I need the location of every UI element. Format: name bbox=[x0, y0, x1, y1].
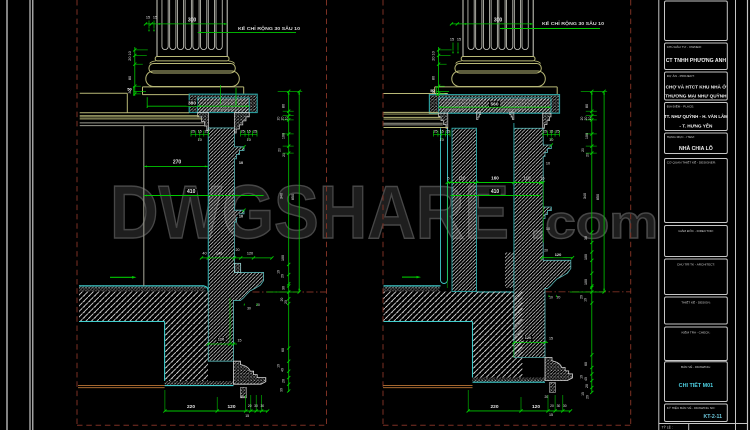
svg-text:15: 15 bbox=[146, 16, 150, 20]
svg-text:10: 10 bbox=[549, 296, 553, 300]
svg-text:20: 20 bbox=[248, 404, 252, 408]
svg-text:- T. HƯNG YÊN: - T. HƯNG YÊN bbox=[679, 121, 713, 128]
svg-text:30: 30 bbox=[584, 236, 588, 240]
svg-text:10: 10 bbox=[588, 117, 592, 121]
svg-text:20: 20 bbox=[282, 153, 286, 157]
svg-text:20: 20 bbox=[550, 404, 554, 408]
svg-text:80: 80 bbox=[432, 76, 436, 80]
svg-text:25: 25 bbox=[434, 129, 438, 133]
svg-text:10: 10 bbox=[285, 117, 289, 121]
svg-text:20: 20 bbox=[557, 296, 561, 300]
svg-text:15: 15 bbox=[245, 414, 249, 418]
svg-text:10: 10 bbox=[239, 161, 243, 165]
svg-text:CT TNHH PHƯƠNG ANH: CT TNHH PHƯƠNG ANH bbox=[666, 58, 727, 64]
svg-text:410: 410 bbox=[187, 189, 196, 195]
svg-text:100: 100 bbox=[282, 133, 286, 139]
svg-text:15: 15 bbox=[457, 38, 461, 42]
svg-text:10: 10 bbox=[239, 215, 243, 219]
svg-text:20 10: 20 10 bbox=[128, 51, 132, 61]
svg-text:220: 220 bbox=[490, 404, 498, 410]
svg-text:20: 20 bbox=[278, 148, 282, 152]
svg-text:40: 40 bbox=[584, 377, 588, 381]
svg-text:50: 50 bbox=[127, 87, 132, 92]
svg-text:20 10: 20 10 bbox=[432, 51, 436, 61]
svg-text:20: 20 bbox=[236, 248, 240, 252]
svg-text:15: 15 bbox=[238, 339, 242, 343]
svg-text:15: 15 bbox=[549, 413, 553, 417]
svg-text:100: 100 bbox=[584, 279, 588, 285]
svg-text:15: 15 bbox=[541, 176, 545, 180]
svg-text:10: 10 bbox=[584, 298, 588, 302]
svg-text:25: 25 bbox=[253, 129, 257, 133]
svg-text:30: 30 bbox=[282, 286, 286, 290]
svg-text:CHỦ ĐẦU TƯ - OWNER:: CHỦ ĐẦU TƯ - OWNER: bbox=[667, 44, 702, 49]
svg-text:380: 380 bbox=[188, 101, 196, 107]
svg-text:25: 25 bbox=[543, 129, 547, 133]
svg-text:KIỂM TRA - CHECK:: KIỂM TRA - CHECK: bbox=[681, 329, 710, 334]
svg-text:TT. NHƯ QUỲNH - H. VĂN LÂM: TT. NHƯ QUỲNH - H. VĂN LÂM bbox=[664, 114, 728, 119]
svg-text:110: 110 bbox=[459, 175, 467, 180]
svg-text:30: 30 bbox=[557, 404, 561, 408]
svg-text:25: 25 bbox=[241, 129, 245, 133]
svg-text:340: 340 bbox=[583, 193, 587, 199]
svg-text:CHI TIẾT M01: CHI TIẾT M01 bbox=[679, 382, 713, 389]
svg-text:25: 25 bbox=[556, 129, 560, 133]
svg-text:80: 80 bbox=[282, 104, 286, 108]
svg-text:10: 10 bbox=[580, 375, 584, 379]
svg-text:DỰ ÁN - PROJECT:: DỰ ÁN - PROJECT: bbox=[667, 74, 695, 78]
svg-text:20: 20 bbox=[581, 148, 585, 152]
svg-text:20: 20 bbox=[241, 395, 245, 399]
svg-text:15: 15 bbox=[440, 129, 444, 133]
svg-text:100: 100 bbox=[584, 254, 588, 260]
svg-text:80: 80 bbox=[585, 104, 589, 108]
svg-text:30: 30 bbox=[254, 404, 258, 408]
svg-text:20: 20 bbox=[585, 384, 589, 388]
svg-text:15: 15 bbox=[153, 16, 157, 20]
svg-text:120: 120 bbox=[218, 337, 225, 342]
svg-text:KẾ CHỈ RỘNG 30 SÂU 10: KẾ CHỈ RỘNG 30 SÂU 10 bbox=[238, 24, 301, 31]
svg-text:30: 30 bbox=[280, 388, 284, 392]
svg-text:30: 30 bbox=[247, 307, 251, 311]
svg-text:100: 100 bbox=[281, 255, 285, 261]
svg-text:10: 10 bbox=[277, 270, 281, 274]
svg-text:HẠNG MỤC - ITEM:: HẠNG MỤC - ITEM: bbox=[667, 135, 695, 139]
svg-text:10: 10 bbox=[546, 162, 550, 166]
svg-text:20: 20 bbox=[281, 274, 285, 278]
svg-text:ĐỊA ĐIỂM - PLACE:: ĐỊA ĐIỂM - PLACE: bbox=[667, 104, 694, 109]
svg-text:220: 220 bbox=[187, 404, 195, 410]
svg-text:25: 25 bbox=[191, 129, 195, 133]
svg-text:300: 300 bbox=[494, 18, 503, 24]
svg-text:300: 300 bbox=[188, 18, 197, 24]
svg-text:25: 25 bbox=[446, 129, 450, 133]
svg-text:410: 410 bbox=[491, 189, 500, 195]
svg-text:20: 20 bbox=[544, 395, 548, 399]
svg-text:KT-2-11: KT-2-11 bbox=[704, 414, 723, 420]
svg-text:850: 850 bbox=[596, 194, 600, 200]
svg-text:40: 40 bbox=[202, 252, 206, 256]
svg-text:15: 15 bbox=[450, 38, 454, 42]
svg-text:15: 15 bbox=[549, 337, 553, 341]
svg-text:60: 60 bbox=[281, 348, 285, 352]
svg-text:15: 15 bbox=[198, 129, 202, 133]
svg-text:25: 25 bbox=[205, 129, 209, 133]
svg-text:15: 15 bbox=[549, 129, 553, 133]
svg-text:120: 120 bbox=[247, 252, 253, 256]
svg-text:100: 100 bbox=[585, 133, 589, 139]
svg-text:120: 120 bbox=[525, 335, 532, 340]
svg-text:KẾ CHỈ RỘNG 30 SÂU 10: KẾ CHỈ RỘNG 30 SÂU 10 bbox=[542, 19, 605, 26]
svg-text:40: 40 bbox=[281, 368, 285, 372]
svg-text:5: 5 bbox=[448, 176, 450, 180]
svg-text:20: 20 bbox=[282, 379, 286, 383]
svg-text:GIÁM ĐỐC - DIRECTOR:: GIÁM ĐỐC - DIRECTOR: bbox=[678, 228, 713, 233]
svg-text:10: 10 bbox=[546, 227, 550, 231]
svg-text:CHỦ TRÌ TK - ARCHITECT:: CHỦ TRÌ TK - ARCHITECT: bbox=[677, 261, 715, 266]
svg-text:THIẾT KẾ - DESIGN:: THIẾT KẾ - DESIGN: bbox=[681, 299, 710, 304]
svg-text:20: 20 bbox=[284, 300, 288, 304]
svg-text:10: 10 bbox=[277, 364, 281, 368]
svg-text:340: 340 bbox=[280, 193, 284, 199]
svg-text:120: 120 bbox=[555, 252, 562, 257]
svg-text:50: 50 bbox=[430, 88, 435, 93]
svg-text:30: 30 bbox=[260, 404, 264, 408]
svg-text:120: 120 bbox=[532, 404, 540, 410]
svg-text:20: 20 bbox=[585, 153, 589, 157]
svg-text:110: 110 bbox=[524, 175, 532, 180]
svg-text:15: 15 bbox=[247, 129, 251, 133]
svg-text:270: 270 bbox=[173, 159, 182, 165]
svg-text:120: 120 bbox=[227, 404, 235, 410]
svg-text:160: 160 bbox=[491, 175, 499, 180]
svg-text:15: 15 bbox=[581, 392, 585, 396]
svg-text:80: 80 bbox=[128, 76, 132, 80]
svg-text:560: 560 bbox=[490, 101, 498, 107]
svg-text:.com: .com bbox=[530, 196, 658, 248]
svg-text:850: 850 bbox=[291, 194, 295, 200]
svg-text:THƯƠNG MẠI NHƯ QUỲNH: THƯƠNG MẠI NHƯ QUỲNH bbox=[665, 92, 727, 98]
svg-text:20: 20 bbox=[586, 395, 590, 399]
svg-text:CƠ QUAN THIẾT KẾ - DESIGNER:: CƠ QUAN THIẾT KẾ - DESIGNER: bbox=[667, 160, 716, 165]
svg-text:20: 20 bbox=[544, 248, 548, 252]
svg-text:NHÀ CHIA LÔ: NHÀ CHIA LÔ bbox=[679, 144, 713, 152]
svg-text:140: 140 bbox=[216, 252, 222, 256]
svg-text:30: 30 bbox=[563, 404, 567, 408]
svg-text:BẢN VẼ - DRAWING:: BẢN VẼ - DRAWING: bbox=[681, 364, 711, 369]
svg-text:CHỢ VÀ HTCT KHU NHÀ Ở: CHỢ VÀ HTCT KHU NHÀ Ở bbox=[666, 83, 727, 89]
svg-text:TỶ LỆ :: TỶ LỆ : bbox=[662, 424, 673, 429]
svg-text:60: 60 bbox=[584, 362, 588, 366]
svg-text:KÝ HIỆU BẢN VẼ - DRAWING NO:: KÝ HIỆU BẢN VẼ - DRAWING NO: bbox=[667, 405, 716, 410]
